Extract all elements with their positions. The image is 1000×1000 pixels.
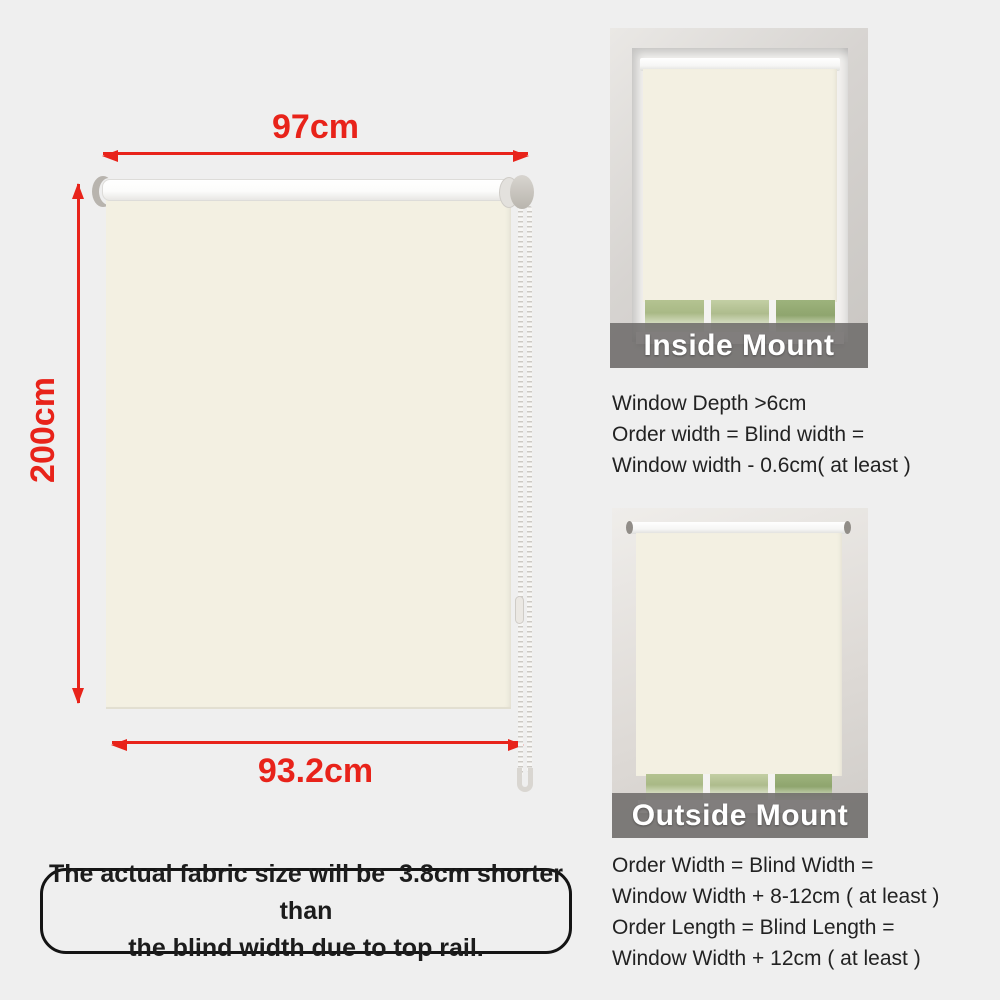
outside-mount-info: Order Width = Blind Width = Window Width… [612, 855, 992, 979]
width-dimension-arrow-icon [103, 152, 528, 155]
height-dimension-arrow-icon [77, 184, 80, 703]
info-line: Window Width + 12cm ( at least ) [612, 948, 992, 969]
inside-mount-info: Window Depth >6cm Order width = Blind wi… [612, 393, 992, 486]
blind-height-label: 200cm [24, 365, 64, 495]
outside-mount-banner: Outside Mount [612, 793, 868, 838]
note-line-1: The actual fabric size will be 3.8cm sho… [43, 856, 569, 930]
info-line: Window Width + 8-12cm ( at least ) [612, 886, 992, 907]
info-line: Order width = Blind width = [612, 424, 992, 445]
info-line: Window width - 0.6cm( at least ) [612, 455, 992, 476]
bead-chain-front-strand [518, 206, 523, 776]
fabric-width-label: 93.2cm [103, 752, 528, 791]
blind-fabric-small [636, 533, 842, 776]
bead-chain-bottom-loop [517, 768, 533, 792]
info-line: Order Width = Blind Width = [612, 855, 992, 876]
bead-chain-back-strand [527, 206, 532, 772]
chain-clutch-front [510, 175, 534, 209]
mount-bracket-left [626, 521, 633, 534]
inside-mount-banner: Inside Mount [610, 323, 868, 368]
note-line-2: the blind width due to top rail. [128, 930, 484, 967]
blind-fabric-small [643, 69, 837, 302]
outside-mount-photo: Outside Mount [612, 508, 868, 838]
outside-mount-title: Outside Mount [632, 799, 848, 833]
fabric-size-note-box: The actual fabric size will be 3.8cm sho… [40, 868, 572, 954]
mount-bracket-right [844, 521, 851, 534]
fabric-width-dimension-arrow-icon [112, 741, 523, 744]
blind-fabric [106, 200, 511, 709]
inside-mount-photo: Inside Mount [610, 28, 868, 368]
inside-mount-title: Inside Mount [644, 329, 835, 363]
chain-connector-bead [515, 596, 524, 624]
info-line: Order Length = Blind Length = [612, 917, 992, 938]
blind-width-label: 97cm [103, 108, 528, 147]
info-line: Window Depth >6cm [612, 393, 992, 414]
roller-top-rail [102, 179, 528, 201]
